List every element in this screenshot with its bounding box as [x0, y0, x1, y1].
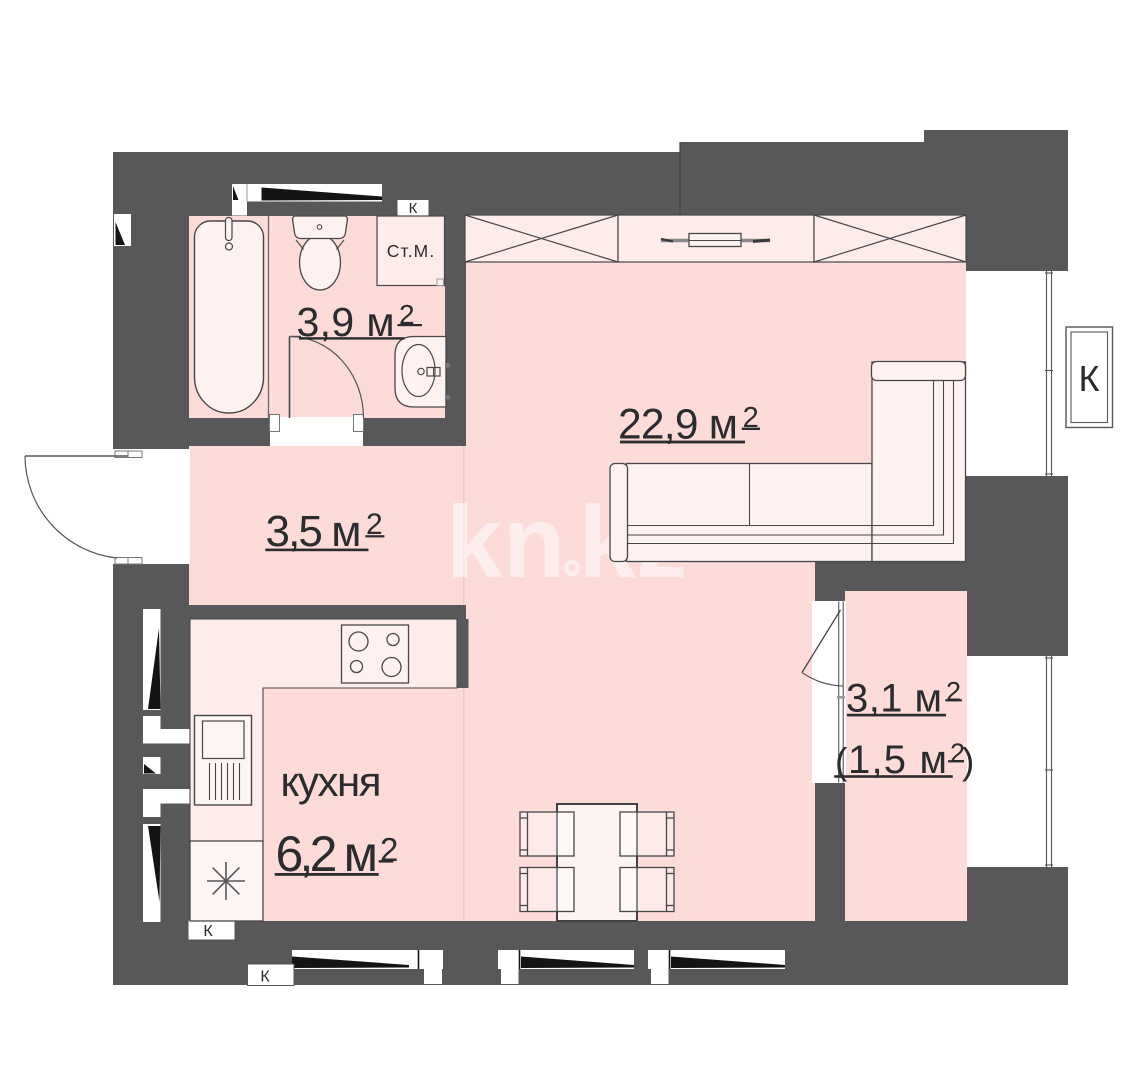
- svg-text:kn: kn: [446, 485, 565, 599]
- svg-text:К: К: [1079, 358, 1100, 399]
- svg-text:К: К: [409, 200, 418, 217]
- svg-text:2: 2: [946, 677, 961, 707]
- svg-text:К: К: [203, 923, 213, 940]
- svg-text:кухня: кухня: [281, 758, 382, 805]
- svg-text:Ст.М.: Ст.М.: [387, 241, 435, 261]
- svg-text:К: К: [260, 969, 270, 986]
